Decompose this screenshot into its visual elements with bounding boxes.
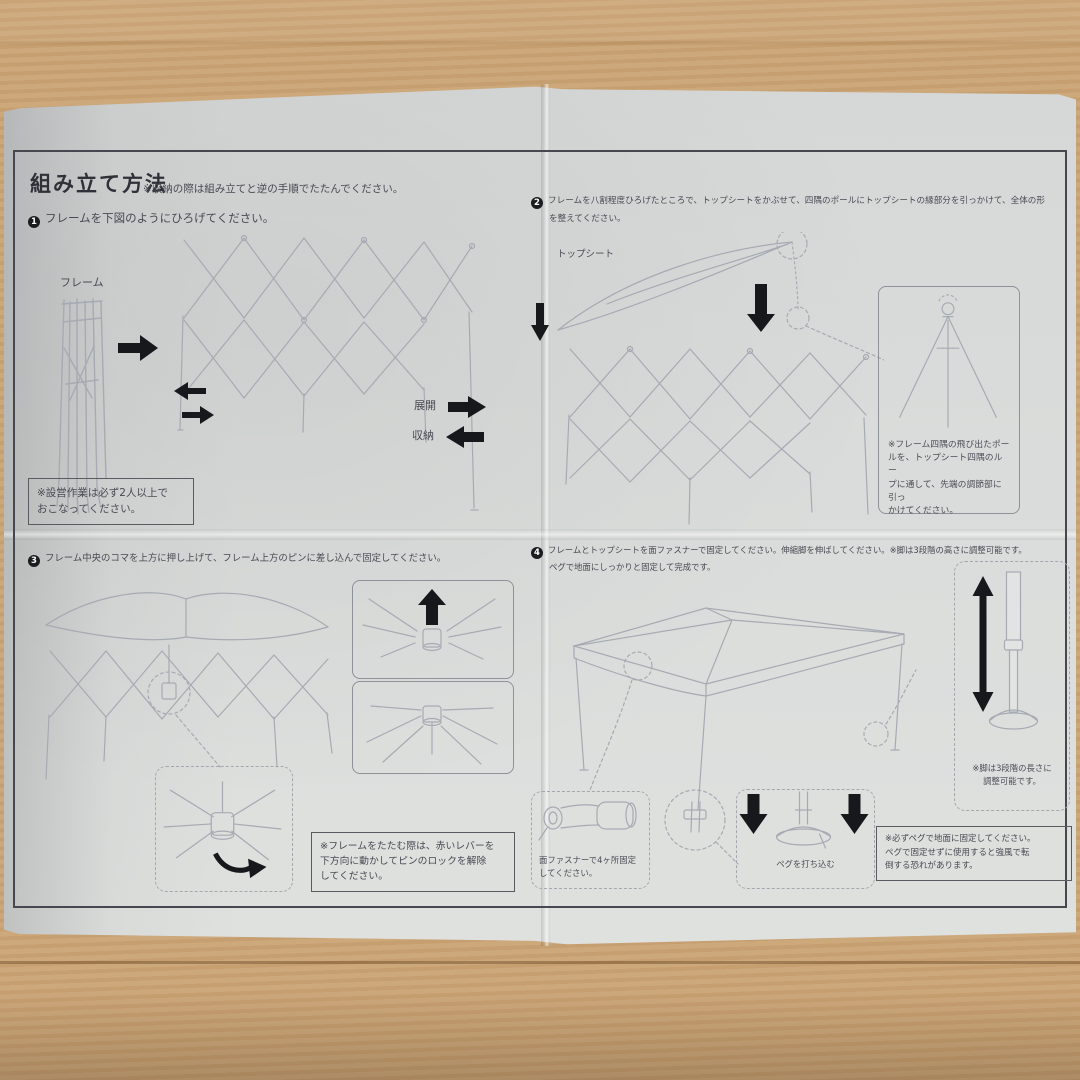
photo-scene: 組み立て方法 ※収納の際は組み立てと逆の手順でたたんでください。 1フレームを下… (0, 0, 1080, 1080)
arrow-left-small-icon (174, 382, 206, 400)
peg-down-arrow-right-icon (841, 794, 869, 834)
corner-detail-box: ※フレーム四隅の飛び出たポー ルを、トップシート四隅のルー プに通して、先端の調… (878, 286, 1020, 514)
fold-lever-note: ※フレームをたたむ際は、赤いレバーを 下方向に動かしてピンのロックを解除 してく… (311, 832, 515, 892)
velcro-detail-box: 面ファスナーで4ヶ所固定 してください。 (531, 791, 650, 889)
leg-detail-box: ※脚は3段階の長さに 調整可能です。 (954, 561, 1070, 811)
leg-note: ※脚は3段階の長さに 調整可能です。 (955, 758, 1069, 787)
step2-number-badge: 2 (531, 197, 543, 209)
peg-caption: ペグを打ち込む (737, 852, 874, 870)
hub-locked-sketch (353, 682, 511, 771)
step3-text: フレーム中央のコマを上方に押し上げて、フレーム上方のピンに差し込んで固定してくだ… (45, 553, 446, 564)
arrow-down-icon (531, 303, 549, 341)
corner-note: ※フレーム四隅の飛び出たポー ルを、トップシート四隅のルー プに通して、先端の調… (879, 437, 1019, 518)
hub-up-sketch (353, 581, 511, 676)
arrow-right-icon (118, 333, 160, 363)
two-person-note: ※設営作業は必ず2人以上で おこなってください。 (28, 478, 194, 525)
canopy-sheet-sketch (552, 232, 884, 532)
step4-text-line1: フレームとトップシートを面ファスナーで固定してください。伸縮脚を伸ばしてください… (548, 545, 1027, 555)
expand-arrow-icon (448, 396, 486, 418)
peg-sketch (737, 790, 871, 852)
table-groove (0, 961, 1080, 964)
hub-sketch (156, 767, 289, 887)
step3-number-badge: 3 (28, 555, 40, 567)
hub-locked-box (352, 681, 514, 774)
peg-warning-note: ※必ずペグで地面に固定してください。 ペグで固定せずに使用すると強風で転 倒する… (876, 826, 1072, 881)
velcro-caption: 面ファスナーで4ヶ所固定 してください。 (532, 846, 649, 879)
page-title-note: ※収納の際は組み立てと逆の手順でたたんでください。 (143, 181, 403, 196)
expand-label: 展開 (414, 397, 436, 413)
step4-text-line2: ペグで地面にしっかりと固定して完成です。 (549, 561, 715, 573)
step4-instruction: 4フレームとトップシートを面ファスナーで固定してください。伸縮脚を伸ばしてくださ… (531, 544, 1066, 559)
hub-detail-box (155, 766, 293, 892)
arrow-up-icon (418, 589, 446, 625)
store-arrow-icon (446, 426, 484, 448)
step2-text-line1: フレームを八割程度ひろげたところで、トップシートをかぶせて、四隅のポールにトップ… (548, 196, 1045, 206)
table-shadow (0, 990, 1080, 1080)
expanded-frame-sketch (156, 222, 508, 518)
arrow-updown-icon (973, 576, 994, 712)
step4-number-badge: 4 (531, 547, 543, 559)
step1-number-badge: 1 (28, 216, 40, 228)
hub-up-box (352, 580, 514, 679)
corner-pole-sketch (879, 287, 1017, 437)
step3-instruction: 3フレーム中央のコマを上方に押し上げて、フレーム上方のピンに差し込んで固定してく… (28, 550, 446, 567)
telescopic-leg-sketch (955, 562, 1066, 758)
sheet-down-arrow-icon (747, 284, 775, 332)
peg-down-arrow-left-icon (740, 794, 768, 834)
rotate-arrow-icon (215, 854, 252, 871)
step2-instruction: 2フレームを八割程度ひろげたところで、トップシートをかぶせて、四隅のポールにトッ… (531, 194, 1066, 209)
store-label: 収納 (412, 427, 434, 443)
arrow-right-small-icon (182, 406, 214, 424)
step2-text-line2: を整えてください。 (549, 212, 626, 224)
velcro-sketch (532, 792, 646, 846)
peg-detail-box: ペグを打ち込む (736, 789, 875, 889)
